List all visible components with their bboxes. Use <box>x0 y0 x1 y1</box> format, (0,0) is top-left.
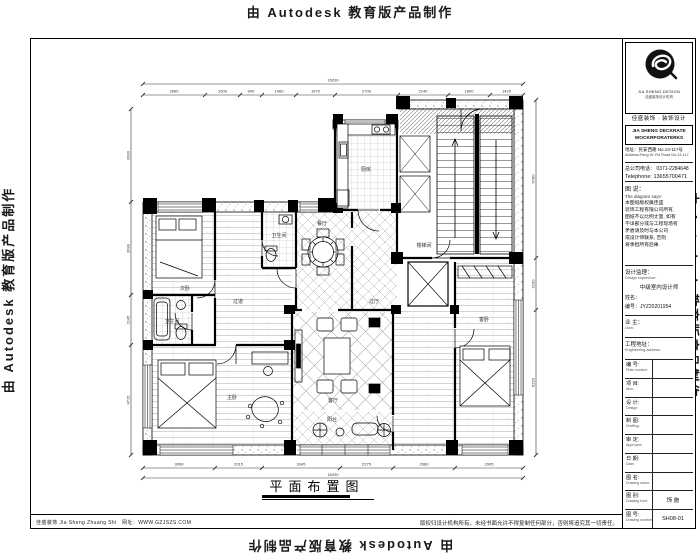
room-label-guest: 客卧 <box>479 316 489 323</box>
svg-text:6220: 6220 <box>531 377 536 387</box>
room-label-bath1: 卫生间 <box>164 318 179 325</box>
plan-title-underline-thick <box>262 495 350 498</box>
table-row-drafting: 制 图:Drafting: <box>625 415 693 434</box>
svg-text:4715: 4715 <box>126 395 131 405</box>
plan-title: 平面布置图 <box>252 476 382 495</box>
dim-top-overall: 16290 <box>327 78 339 83</box>
table-row-number: 编 号:Plate number: <box>625 359 693 378</box>
site-section: 工程地址： Engineering address: <box>625 337 693 359</box>
svg-text:1500: 1500 <box>218 89 228 94</box>
designer-title: 中级室内设计师 <box>625 283 693 291</box>
svg-text:3345: 3345 <box>297 462 307 467</box>
logo-caption: JIA SHENG DESIGN <box>626 89 692 94</box>
table-row-drawing-kind: 图 别:Drawing kind: 饰 施 <box>625 490 693 509</box>
duct-shaft <box>408 262 448 306</box>
elevators <box>400 136 430 212</box>
svg-text:6780: 6780 <box>531 174 536 184</box>
footer-strip: 佳盛装饰 Jia Sheng Zhuang Shi 网址：WWW.GZJSZS.… <box>30 514 622 530</box>
company-name-cn: 佳盛装饰 · 装饰设计 <box>625 114 693 125</box>
room-label-dining: 餐厅 <box>317 220 327 227</box>
room-label-bedroom2: 次卧 <box>180 285 190 292</box>
svg-text:3990: 3990 <box>126 150 131 160</box>
table-row-approved: 审 定:Approved: <box>625 434 693 453</box>
table-row-item: 项 目:Item: <box>625 378 693 397</box>
svg-text:2015: 2015 <box>234 462 244 467</box>
room-label-balcony: 阳台 <box>327 416 337 423</box>
table-row-drawing-number: 图 号:Drawing number: SH08-01 <box>625 509 693 528</box>
designer-name-label: 姓名： <box>625 294 693 301</box>
company-address: 地址：民安西路 No.13-117号 Address:Fang W. Rd Ro… <box>625 145 693 162</box>
room-label-living: 客厅 <box>328 397 338 404</box>
room-label-kitchen: 厨房 <box>361 166 371 173</box>
designer-number: 编号：JYZ20201954 <box>625 303 693 310</box>
owner-section: 业 主： Own: <box>625 315 693 337</box>
footer-company-text: 佳盛装饰 Jia Sheng Zhuang Shi 网址：WWW.GZJSZS.… <box>36 519 191 526</box>
svg-text:2145: 2145 <box>126 315 131 325</box>
company-logo-icon <box>626 46 694 84</box>
svg-text:1460: 1460 <box>275 89 285 94</box>
room-label-stair: 楼梯间 <box>416 242 431 249</box>
svg-text:3090: 3090 <box>175 462 185 467</box>
room-label-bath2: 卫生间 <box>271 232 286 239</box>
svg-text:2905: 2905 <box>485 462 495 467</box>
title-block-table: 编 号:Plate number: 项 目:Item: 设 计:Design: … <box>625 359 693 528</box>
designer-section: 设计监理： Design supervisor: 中级室内设计师 姓名： 编号：… <box>625 265 693 315</box>
logo-subcaption: 佳盛装饰设计机构 <box>626 95 692 100</box>
room-label-corridor: 过道 <box>233 298 243 305</box>
drawing-notice: 图 说： The diagram says: 本图纸版权属佳盛 装饰工程有限公司… <box>625 181 693 265</box>
svg-text:2660: 2660 <box>170 89 180 94</box>
table-row-date: 日 期:Date: <box>625 453 693 472</box>
company-phone: 总公司电话： 0371-2284648 Telephone: 136557004… <box>625 162 693 181</box>
room-label-master: 主卧 <box>227 394 237 401</box>
footer-copyright-text: 版权归设计机构所有，未经书面允许不得复制任何部分，否则将追究其一切责任。 <box>420 519 618 527</box>
title-block: JIA SHENG DESIGN 佳盛装饰设计机构 佳盛装饰 · 装饰设计 JI… <box>622 38 696 529</box>
plan-title-underline-thin <box>262 499 374 500</box>
svg-text:1670: 1670 <box>311 89 321 94</box>
staircase <box>437 114 512 254</box>
table-row-design: 设 计:Design: <box>625 397 693 416</box>
svg-text:2230: 2230 <box>531 279 536 289</box>
svg-text:2700: 2700 <box>362 89 372 94</box>
svg-text:2140: 2140 <box>419 89 429 94</box>
svg-text:2660: 2660 <box>420 462 430 467</box>
svg-text:1420: 1420 <box>502 89 512 94</box>
svg-text:1800: 1800 <box>465 89 475 94</box>
company-name-en: JIA SHENG DECKRATE WOCKRPORATERKS <box>625 125 693 145</box>
svg-text:940: 940 <box>248 89 255 94</box>
svg-text:3990: 3990 <box>126 243 131 253</box>
table-row-drawing-name: 图 名:Drawing name: <box>625 472 693 491</box>
room-label-hall: 过厅 <box>369 298 379 305</box>
svg-text:2275: 2275 <box>362 462 372 467</box>
bed-secondary <box>156 216 202 278</box>
company-logo: JIA SHENG DESIGN 佳盛装饰设计机构 <box>625 42 693 114</box>
